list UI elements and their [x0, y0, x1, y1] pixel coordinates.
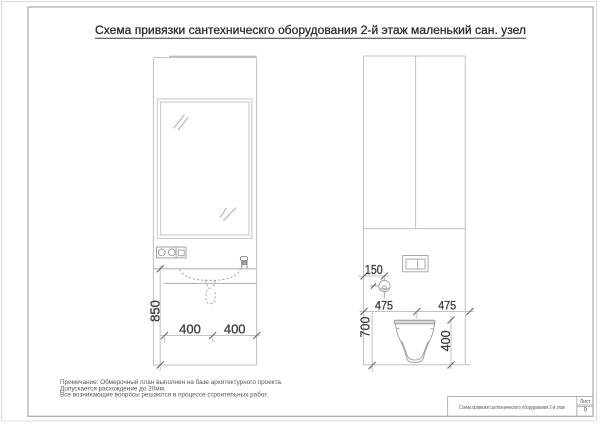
svg-text:475: 475 — [375, 299, 393, 313]
svg-text:400: 400 — [224, 322, 246, 337]
svg-text:Схема привязки сантехнического: Схема привязки сантехнического оборудова… — [459, 404, 566, 411]
svg-text:475: 475 — [438, 299, 456, 313]
svg-text:400: 400 — [179, 322, 201, 337]
svg-text:Все возникающие вопросы решают: Все возникающие вопросы решаются в проце… — [60, 391, 268, 399]
svg-text:150: 150 — [365, 263, 383, 277]
svg-text:Лист: Лист — [580, 399, 592, 405]
svg-text:Схема привязки сантехническго: Схема привязки сантехническго оборудован… — [95, 23, 526, 37]
svg-text:400: 400 — [438, 330, 453, 351]
svg-text:850: 850 — [147, 300, 162, 322]
svg-text:700: 700 — [357, 317, 372, 338]
